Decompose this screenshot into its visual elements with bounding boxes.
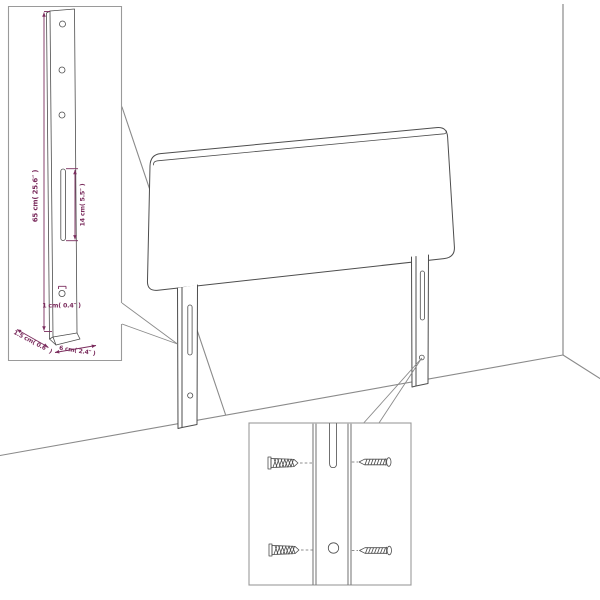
headboard-dimension-diagram: 65 cm( 25.6″ ) 14 cm( 5.5″ ) 1 cm( 0.4″ …	[0, 0, 600, 600]
hardware-inset-callout-lines	[361, 358, 422, 426]
leg-inset-callout-lines	[122, 303, 178, 344]
headboard-panel	[147, 127, 454, 290]
dimension-label-hole: 1 cm( 0.4″ )	[42, 303, 81, 310]
left-mounting-leg	[178, 285, 198, 429]
diagram-canvas: 65 cm( 25.6″ ) 14 cm( 5.5″ ) 1 cm( 0.4″ …	[0, 0, 600, 600]
dimension-label-height: 65 cm( 25.6″ )	[32, 170, 40, 223]
leg-detail-inset: 65 cm( 25.6″ ) 14 cm( 5.5″ ) 1 cm( 0.4″ …	[8, 6, 122, 361]
dimension-label-slot: 14 cm( 5.5″ )	[80, 183, 87, 226]
hardware-detail-inset	[249, 423, 411, 585]
floor-line-right	[563, 355, 600, 379]
